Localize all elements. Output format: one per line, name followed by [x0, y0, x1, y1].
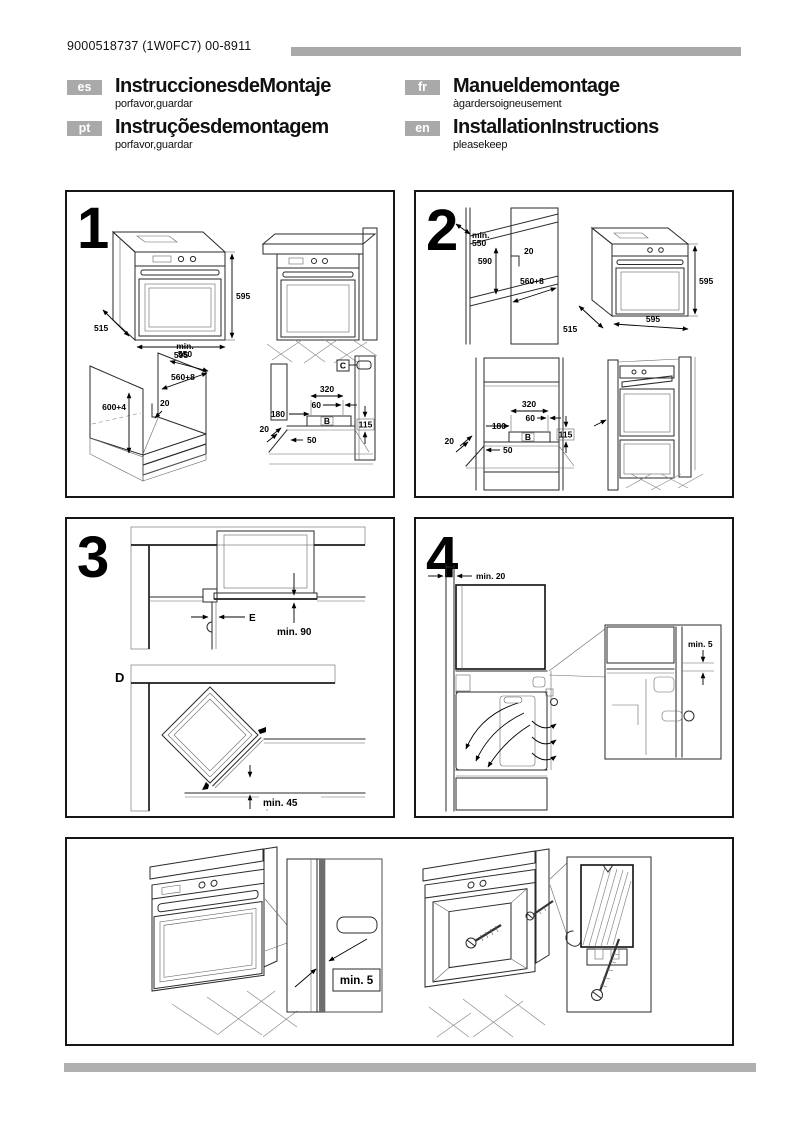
lang-badge-es: es — [67, 80, 102, 95]
screw-fixing-view — [423, 849, 567, 1037]
top-divider-bar — [291, 47, 741, 56]
cabinet-cutout-view: 20 600+4 min. 550 560+8 — [90, 341, 208, 481]
dim-niche-50: 50 — [307, 435, 317, 445]
figure-number: 2 — [426, 198, 458, 263]
dim-cabinet-depth-value: 550 — [178, 349, 192, 359]
lang-row-en: en InstallationInstructions pleasekeep — [405, 117, 659, 151]
figure-3-panel: 3 E min. 90 — [65, 517, 395, 818]
lang-row-es: es InstruccionesdeMontaje porfavor,guard… — [67, 76, 331, 110]
screw-icon — [592, 939, 620, 1001]
lang-badge-en: en — [405, 121, 440, 136]
detail-d-label: D — [115, 670, 124, 685]
dim-column-gap: 20 — [524, 246, 534, 256]
connector-c-label: C — [340, 361, 346, 371]
bottom-divider-bar — [64, 1063, 756, 1072]
tall-unit-installed-view — [594, 357, 703, 490]
lang-title-es: InstruccionesdeMontaje — [115, 76, 331, 97]
zone-b-label: B — [324, 416, 330, 426]
figure-number: 3 — [77, 525, 109, 590]
dim-min-5: min. 5 — [688, 639, 713, 649]
mounting-bracket-icon — [587, 949, 627, 965]
oven-isometric-view: 595 515 595 — [94, 232, 250, 360]
dim-niche-320: 320 — [320, 384, 334, 394]
lang-subtitle-en: pleasekeep — [453, 139, 659, 151]
oven-under-counter-view — [263, 228, 377, 363]
dim-cabinet-width: 560+8 — [171, 372, 195, 382]
dim-niche-20: 20 — [445, 436, 455, 446]
figure-1-panel: 1 595 515 595 — [65, 190, 395, 498]
side-gap-check-view — [150, 847, 297, 1037]
figure-2-panel: 2 min. 550 590 20 560+8 — [414, 190, 734, 498]
niche-dimension-view: B 320 60 180 115 50 — [445, 358, 574, 490]
figure-4-diagram: 4 min. 20 — [416, 519, 732, 816]
instruction-sheet-page: 9000518737 (1W0FC7) 00-8911 es Instrucci… — [0, 0, 802, 1134]
dim-label-e: E — [249, 613, 256, 624]
gap-detail-inset: min. 5 — [605, 625, 721, 759]
dim-niche-50: 50 — [503, 445, 513, 455]
lang-title-en: InstallationInstructions — [453, 117, 659, 138]
door-knob-icon — [684, 711, 694, 721]
dim-min-20: min. 20 — [476, 571, 506, 581]
lang-title-pt: Instruçõesdemontagem — [115, 117, 329, 138]
dim-niche-20: 20 — [260, 424, 270, 434]
dim-oven-depth: 515 — [563, 324, 577, 334]
mounting-panel: min. 5 — [65, 837, 734, 1046]
dim-oven-width: 595 — [646, 314, 660, 324]
lang-row-fr: fr Manueldemontage àgardersoigneusement — [405, 76, 620, 110]
tall-unit-cutout-view: min. 550 590 20 560+8 — [456, 208, 558, 344]
door-knob-icon — [551, 699, 558, 706]
dim-cabinet-height: 600+4 — [102, 402, 126, 412]
screw-icon — [466, 925, 501, 948]
dim-niche-180: 180 — [271, 409, 285, 419]
dim-min-45: min. 45 — [263, 798, 298, 809]
figure-3-diagram: 3 E min. 90 — [67, 519, 393, 816]
dim-min-5: min. 5 — [340, 975, 374, 987]
dim-niche-60: 60 — [312, 400, 322, 410]
niche-dimension-view: B 320 60 180 115 50 20 C — [260, 356, 375, 464]
dim-oven-depth: 515 — [94, 323, 108, 333]
mounting-diagram: min. 5 — [67, 839, 732, 1044]
dim-niche-115: 115 — [359, 420, 373, 430]
figure-1-diagram: 1 595 515 595 — [67, 192, 393, 496]
figure-number: 1 — [77, 196, 109, 261]
dim-cabinet-gap: 20 — [160, 398, 170, 408]
document-number: 9000518737 (1W0FC7) 00-8911 — [67, 39, 251, 53]
lang-subtitle-es: porfavor,guardar — [115, 98, 331, 110]
lang-badge-pt: pt — [67, 121, 102, 136]
spring-clip-icon — [566, 931, 581, 946]
figure-4-panel: 4 min. 20 — [414, 517, 734, 818]
dim-niche-320: 320 — [522, 399, 536, 409]
figure-number: 4 — [426, 525, 458, 590]
dim-column-depth-value: 550 — [472, 238, 486, 248]
lang-subtitle-fr: àgardersoigneusement — [453, 98, 620, 110]
dim-column-width: 560+8 — [520, 276, 544, 286]
dim-niche-60: 60 — [526, 413, 536, 423]
dim-oven-height: 595 — [699, 276, 713, 286]
bracket-detail-inset — [566, 857, 651, 1012]
dim-oven-height: 595 — [236, 291, 250, 301]
side-gap-detail-inset: min. 5 — [287, 859, 382, 1012]
oven-isometric-view: 595 515 595 — [563, 228, 713, 334]
lang-badge-fr: fr — [405, 80, 440, 95]
figure-2-diagram: 2 min. 550 590 20 560+8 — [416, 192, 732, 496]
corner-clearance-plan-view: E min. 90 — [131, 527, 365, 649]
diagonal-corner-plan-view: D min. 45 — [115, 665, 365, 811]
dim-column-590: 590 — [478, 256, 492, 266]
dim-niche-115: 115 — [559, 430, 573, 440]
lang-title-fr: Manueldemontage — [453, 76, 620, 97]
dim-min-90: min. 90 — [277, 627, 312, 638]
lang-row-pt: pt Instruçõesdemontagem porfavor,guardar — [67, 117, 329, 151]
lang-subtitle-pt: porfavor,guardar — [115, 139, 329, 151]
ventilation-section-view: min. 20 — [428, 565, 605, 811]
zone-b-label: B — [525, 432, 531, 442]
